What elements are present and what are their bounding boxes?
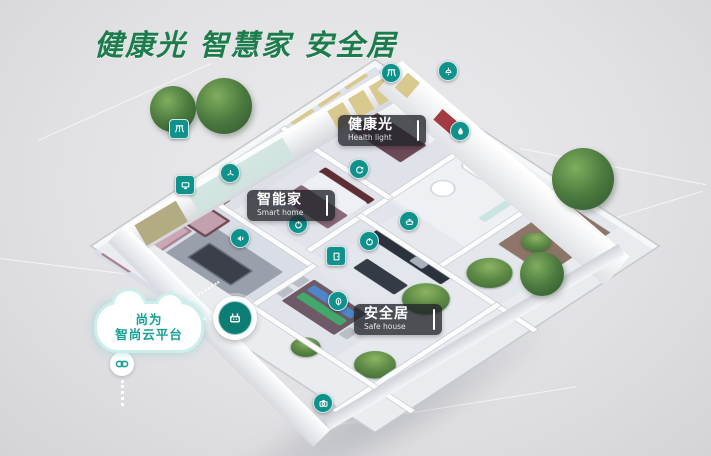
- label-smart-home-zh: 智能家: [257, 193, 319, 208]
- gateway-hub-core: [218, 301, 252, 335]
- label-safe-house-zh: 安全居: [364, 307, 426, 322]
- cloud-link-icon[interactable]: [110, 352, 134, 376]
- water-sensor-icon[interactable]: [450, 121, 470, 141]
- tree: [520, 252, 564, 296]
- label-health-light-zh: 健康光: [348, 118, 410, 133]
- voice-speaker-icon[interactable]: [230, 228, 250, 248]
- doorbell-camera-icon[interactable]: [313, 393, 333, 413]
- curtain-icon[interactable]: [169, 119, 189, 139]
- label-safe-house[interactable]: 安全居 Safe house: [354, 304, 442, 335]
- kitchen-sensor-icon[interactable]: [399, 211, 419, 231]
- cloud-platform[interactable]: 尚为 智尚云平台: [94, 301, 204, 353]
- label-health-light-en: Health light: [348, 133, 410, 142]
- cloud-downlink: [121, 380, 124, 406]
- label-safe-house-en: Safe house: [364, 322, 426, 331]
- gateway-hub-icon[interactable]: [213, 296, 257, 340]
- tv-icon[interactable]: [175, 175, 195, 195]
- label-smart-home[interactable]: 智能家 Smart home: [247, 190, 335, 221]
- door-sensor-icon[interactable]: [326, 246, 346, 266]
- label-divider: [326, 195, 328, 216]
- ceiling-light-icon[interactable]: [438, 61, 458, 81]
- tree: [196, 78, 252, 134]
- cloud-line2: 智尚云平台: [115, 327, 183, 342]
- window-blind: [348, 90, 375, 118]
- page-title: 健康光 智慧家 安全居: [94, 22, 397, 64]
- promo-canvas: 健康光 智慧家 安全居: [0, 0, 711, 456]
- power-icon[interactable]: [359, 231, 379, 251]
- cloud-line1: 尚为: [135, 312, 162, 327]
- washbasin: [424, 176, 461, 200]
- kitchen-island: [353, 259, 408, 295]
- ceiling-fan-icon[interactable]: [220, 163, 240, 183]
- label-divider: [417, 120, 419, 141]
- label-smart-home-en: Smart home: [257, 208, 319, 217]
- scene-switch-icon[interactable]: [349, 159, 369, 179]
- env-sensor-icon[interactable]: [328, 291, 348, 311]
- tree: [552, 148, 614, 210]
- label-divider: [433, 309, 435, 330]
- bedroom-curtain-icon[interactable]: [381, 63, 401, 83]
- label-health-light[interactable]: 健康光 Health light: [338, 115, 426, 146]
